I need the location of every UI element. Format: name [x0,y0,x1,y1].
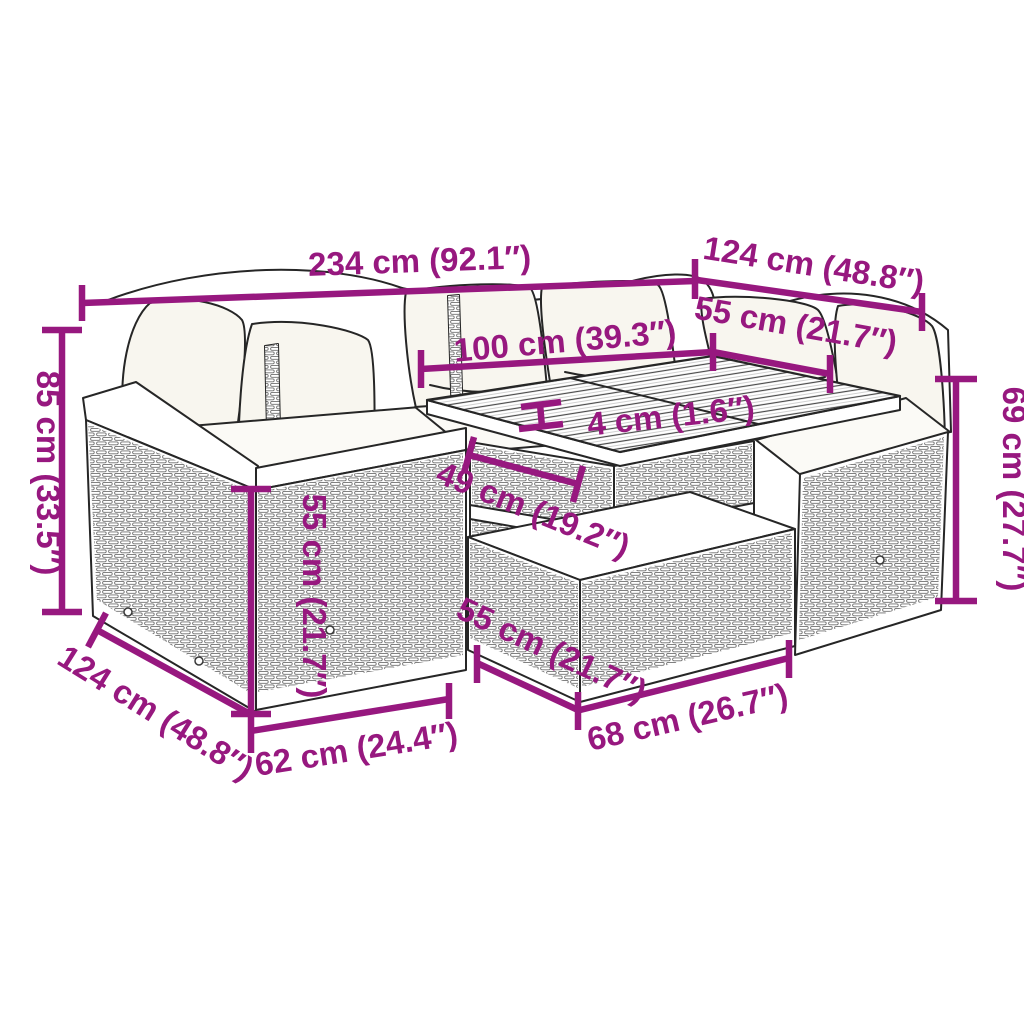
dim-label-back-height: 85 cm (33.5″) [30,371,67,576]
dim-label-right-depth: 124 cm (48.8″) [701,229,927,300]
dim-label-right-back-height: 69 cm (27.7″) [996,387,1024,592]
diagram-canvas: 234 cm (92.1″) 124 cm (48.8″) 55 cm (21.… [0,0,1024,1024]
dim-label-seat-height: 55 cm (21.7″) [296,494,333,699]
dim-label-total-width: 234 cm (92.1″) [307,238,531,283]
dimension-diagram: 234 cm (92.1″) 124 cm (48.8″) 55 cm (21.… [0,0,1024,1024]
front-left-sofa-module [256,428,466,710]
